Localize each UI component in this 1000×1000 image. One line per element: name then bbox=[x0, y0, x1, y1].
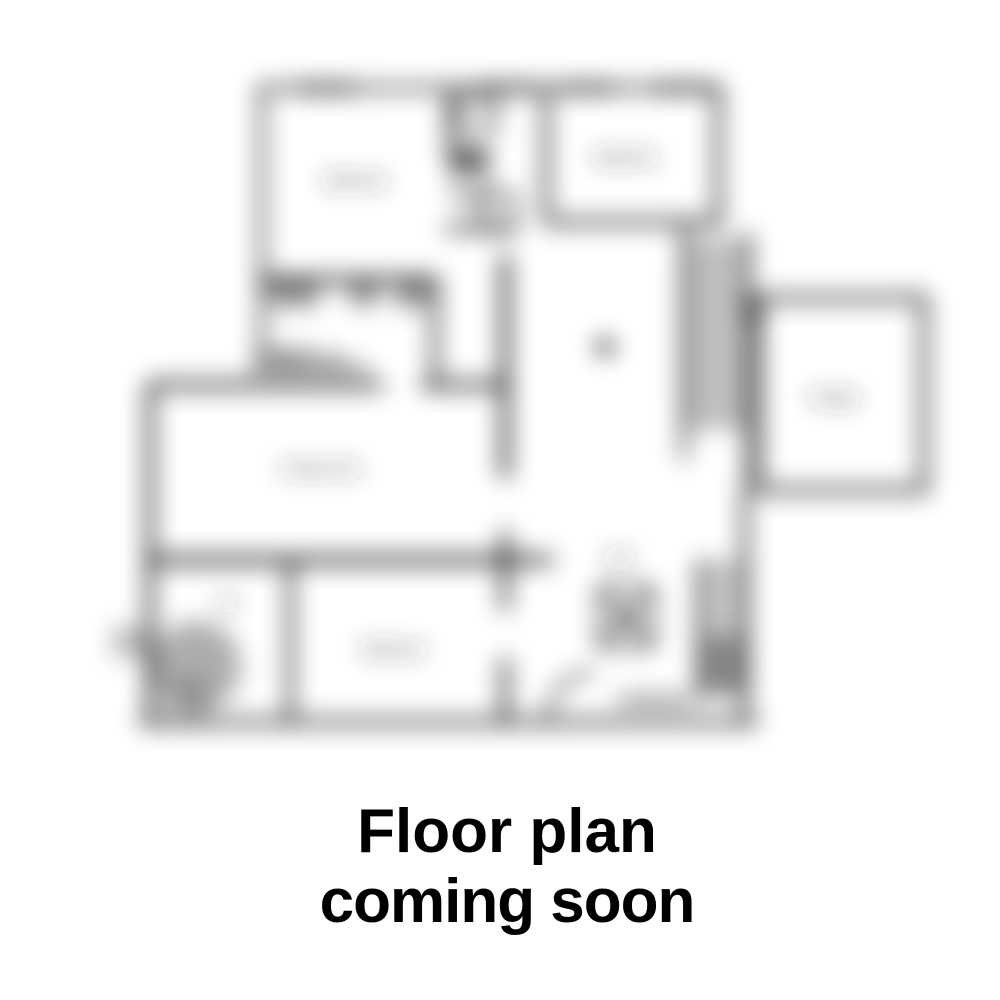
svg-text:Garage: Garage bbox=[810, 389, 858, 405]
svg-text:WC: WC bbox=[218, 597, 238, 611]
svg-text:Living room: Living room bbox=[280, 460, 360, 476]
svg-text:Bath: Bath bbox=[607, 551, 634, 565]
svg-text:Bedroom: Bedroom bbox=[595, 149, 656, 165]
svg-text:Bedroom: Bedroom bbox=[325, 172, 386, 188]
svg-text:Bedroom: Bedroom bbox=[363, 641, 424, 657]
